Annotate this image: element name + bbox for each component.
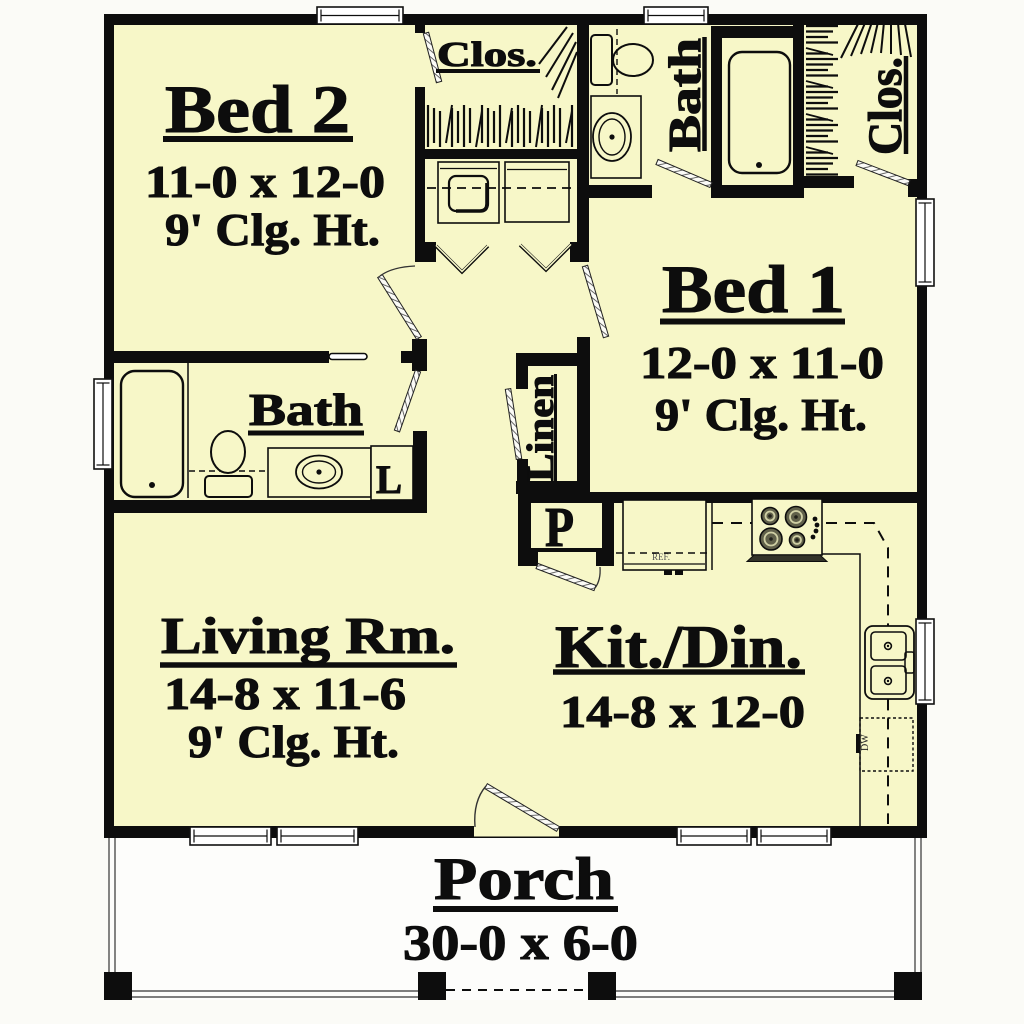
svg-text:Bed 1: Bed 1 [662, 251, 845, 327]
svg-text:12-0 x 11-0: 12-0 x 11-0 [640, 337, 884, 388]
svg-text:Porch: Porch [434, 846, 614, 912]
svg-text:L: L [376, 457, 402, 502]
svg-text:Bed 2: Bed 2 [165, 71, 350, 147]
svg-text:Clos.: Clos. [437, 35, 537, 74]
svg-text:14-8 x 12-0: 14-8 x 12-0 [560, 686, 805, 737]
svg-text:9' Clg. Ht.: 9' Clg. Ht. [188, 716, 399, 767]
svg-text:9' Clg. Ht.: 9' Clg. Ht. [165, 204, 380, 255]
svg-text:9' Clg. Ht.: 9' Clg. Ht. [655, 389, 867, 440]
svg-text:11-0 x 12-0: 11-0 x 12-0 [145, 156, 385, 207]
svg-text:Living Rm.: Living Rm. [161, 608, 455, 665]
svg-text:30-0 x 6-0: 30-0 x 6-0 [403, 914, 638, 970]
svg-text:Bath: Bath [249, 384, 363, 435]
svg-text:DW: DW [860, 734, 871, 751]
svg-text:14-8 x 11-6: 14-8 x 11-6 [164, 668, 406, 719]
